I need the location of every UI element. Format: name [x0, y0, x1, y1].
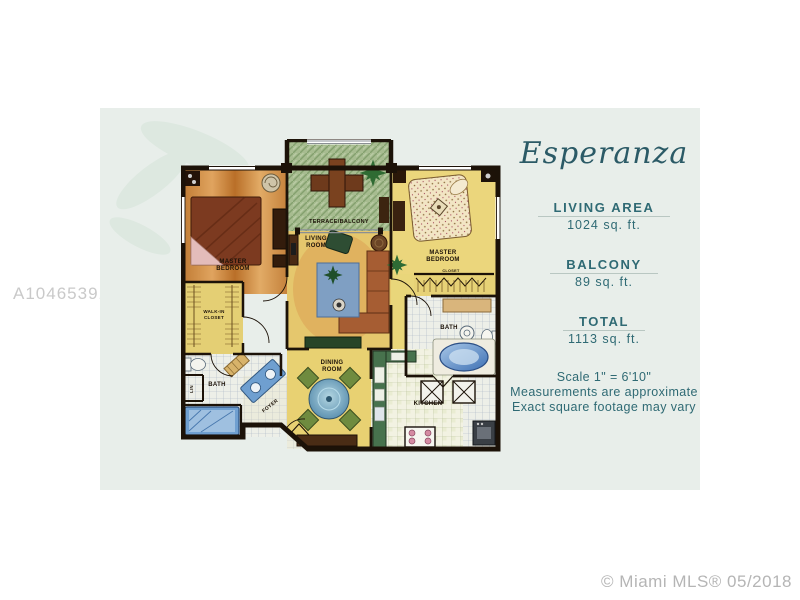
dining-table [309, 379, 349, 419]
label-living-room: LIVING [305, 236, 327, 242]
floorplan-card: MASTER BEDROOM TERRACE/BALCONY LIVING RO… [100, 108, 700, 490]
note-vary: Exact square footage may vary [508, 400, 700, 415]
side-table [371, 235, 387, 251]
washer-dryer [473, 421, 495, 445]
bathtub-left [185, 407, 239, 435]
lamp-icon [188, 174, 192, 178]
dresser-left [273, 209, 287, 267]
lamp-icon [192, 180, 196, 184]
label-master-bedroom-left: MASTER [219, 259, 246, 265]
plan-title: Esperanza [508, 136, 700, 171]
label-bath-right: BATH [440, 325, 457, 331]
label-dining-room: ROOM [322, 367, 342, 373]
label-kitchen: KITCHEN [414, 401, 443, 407]
floorplan-drawing: MASTER BEDROOM TERRACE/BALCONY LIVING RO… [181, 139, 503, 453]
label-master-bedroom-left: BEDROOM [216, 266, 249, 272]
mls-id-watermark: A10465391 [13, 284, 109, 304]
vanity-right [443, 299, 491, 312]
label-living-room: ROOM [306, 243, 326, 249]
terrace-chair [379, 197, 389, 223]
stat-value: 1024 sq. ft. [508, 218, 700, 232]
disclaimer-notes: Scale 1" = 6'10" Measurements are approx… [508, 370, 700, 415]
stat-total: TOTAL 1113 sq. ft. [508, 313, 700, 346]
stats-list: LIVING AREA 1024 sq. ft. BALCONY 89 sq. … [508, 199, 700, 346]
stat-value: 89 sq. ft. [508, 275, 700, 289]
note-approximate: Measurements are approximate [508, 385, 700, 400]
area-rug [317, 263, 359, 317]
media-console [305, 337, 361, 348]
label-master-bedroom-right: BEDROOM [426, 257, 459, 263]
bed-left [191, 197, 261, 265]
label-bath-left: BATH [208, 382, 225, 388]
stat-label: BALCONY [550, 257, 657, 274]
toilet-left [185, 358, 206, 371]
stat-value: 1113 sq. ft. [508, 332, 700, 346]
label-closet-right: CLOSET [442, 269, 460, 273]
ac-unit [481, 170, 496, 182]
note-scale: Scale 1" = 6'10" [508, 370, 700, 385]
stat-living-area: LIVING AREA 1024 sq. ft. [508, 199, 700, 232]
label-master-bedroom-right: MASTER [429, 250, 456, 256]
decor-shell [262, 174, 280, 192]
label-linen-closet: LIN [189, 385, 194, 393]
stove [405, 427, 435, 447]
nightstand-left [185, 171, 200, 186]
stat-label: LIVING AREA [538, 200, 671, 217]
mls-copyright: © Miami MLS® 05/2018 [601, 572, 792, 592]
label-walkin-closet: WALK-IN [203, 309, 224, 314]
listing-image: A10465391 [0, 0, 800, 600]
stat-label: TOTAL [563, 314, 645, 331]
jacuzzi-tub [433, 339, 495, 375]
dresser-right [393, 201, 405, 231]
label-terrace-balcony: TERRACE/BALCONY [309, 219, 369, 225]
tv-cabinet [289, 235, 298, 265]
label-walkin-closet: CLOSET [204, 315, 224, 320]
bed-right [408, 174, 476, 242]
wall-pillar [386, 163, 397, 173]
label-dining-room: DINING [321, 360, 344, 366]
wall-pillar [281, 163, 292, 173]
sink-right [460, 326, 474, 340]
stat-balcony: BALCONY 89 sq. ft. [508, 256, 700, 289]
info-panel: Esperanza LIVING AREA 1024 sq. ft. BALCO… [508, 136, 700, 415]
